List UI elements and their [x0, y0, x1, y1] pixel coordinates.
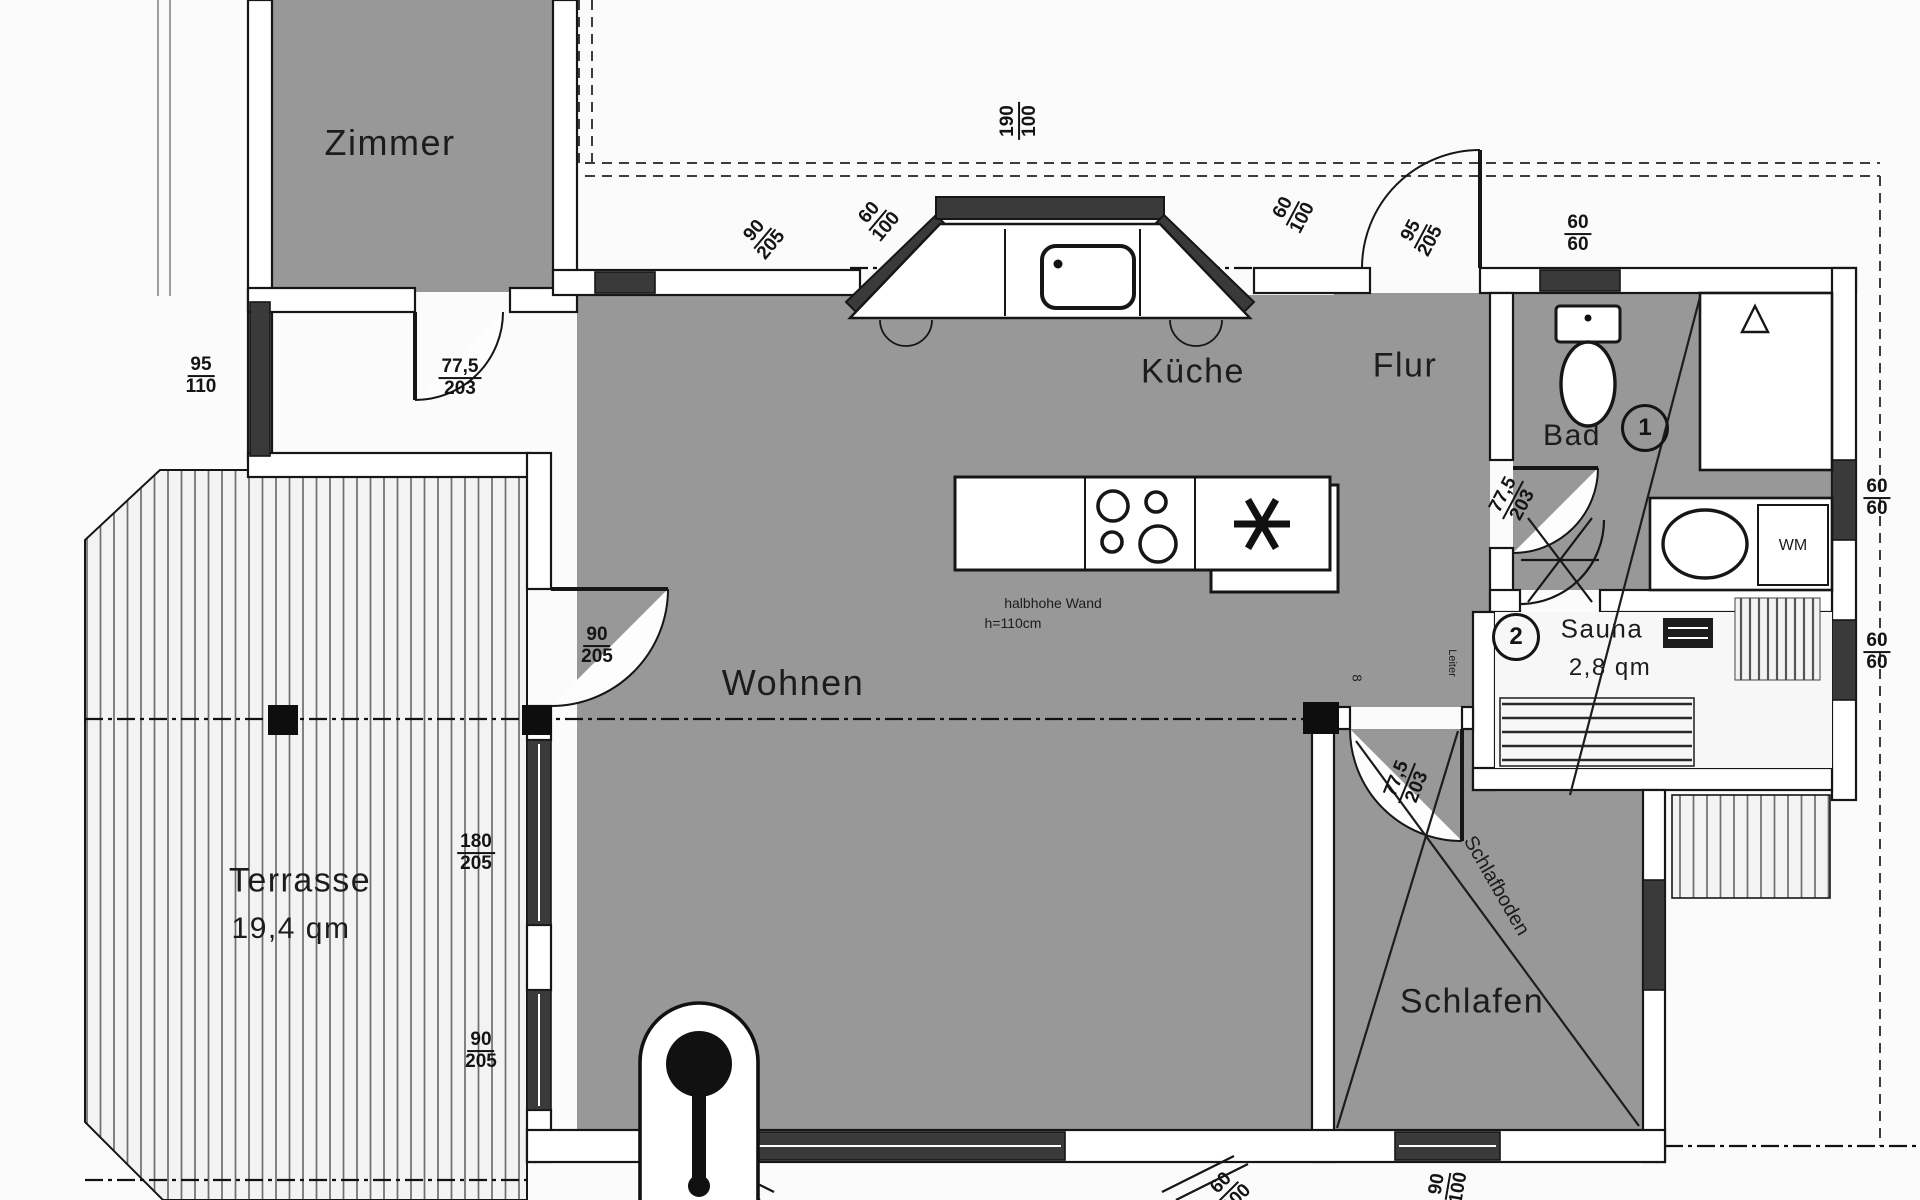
sauna-heater [1663, 618, 1713, 648]
side-deck [1672, 795, 1830, 898]
washing-machine [1758, 505, 1828, 585]
floor-plan-drawing [0, 0, 1920, 1200]
vanity-counter [1650, 498, 1832, 590]
floor-plan-page: ZimmerKücheFlurBadWohnenSchlafenTerrasse… [0, 0, 1920, 1200]
washbasin [1663, 510, 1747, 578]
sauna [1495, 598, 1832, 768]
sink-faucet [1054, 260, 1063, 269]
terrace-deck [85, 470, 527, 1200]
fireplace [640, 1003, 758, 1200]
shower [1700, 293, 1832, 470]
toilet [1556, 306, 1620, 426]
